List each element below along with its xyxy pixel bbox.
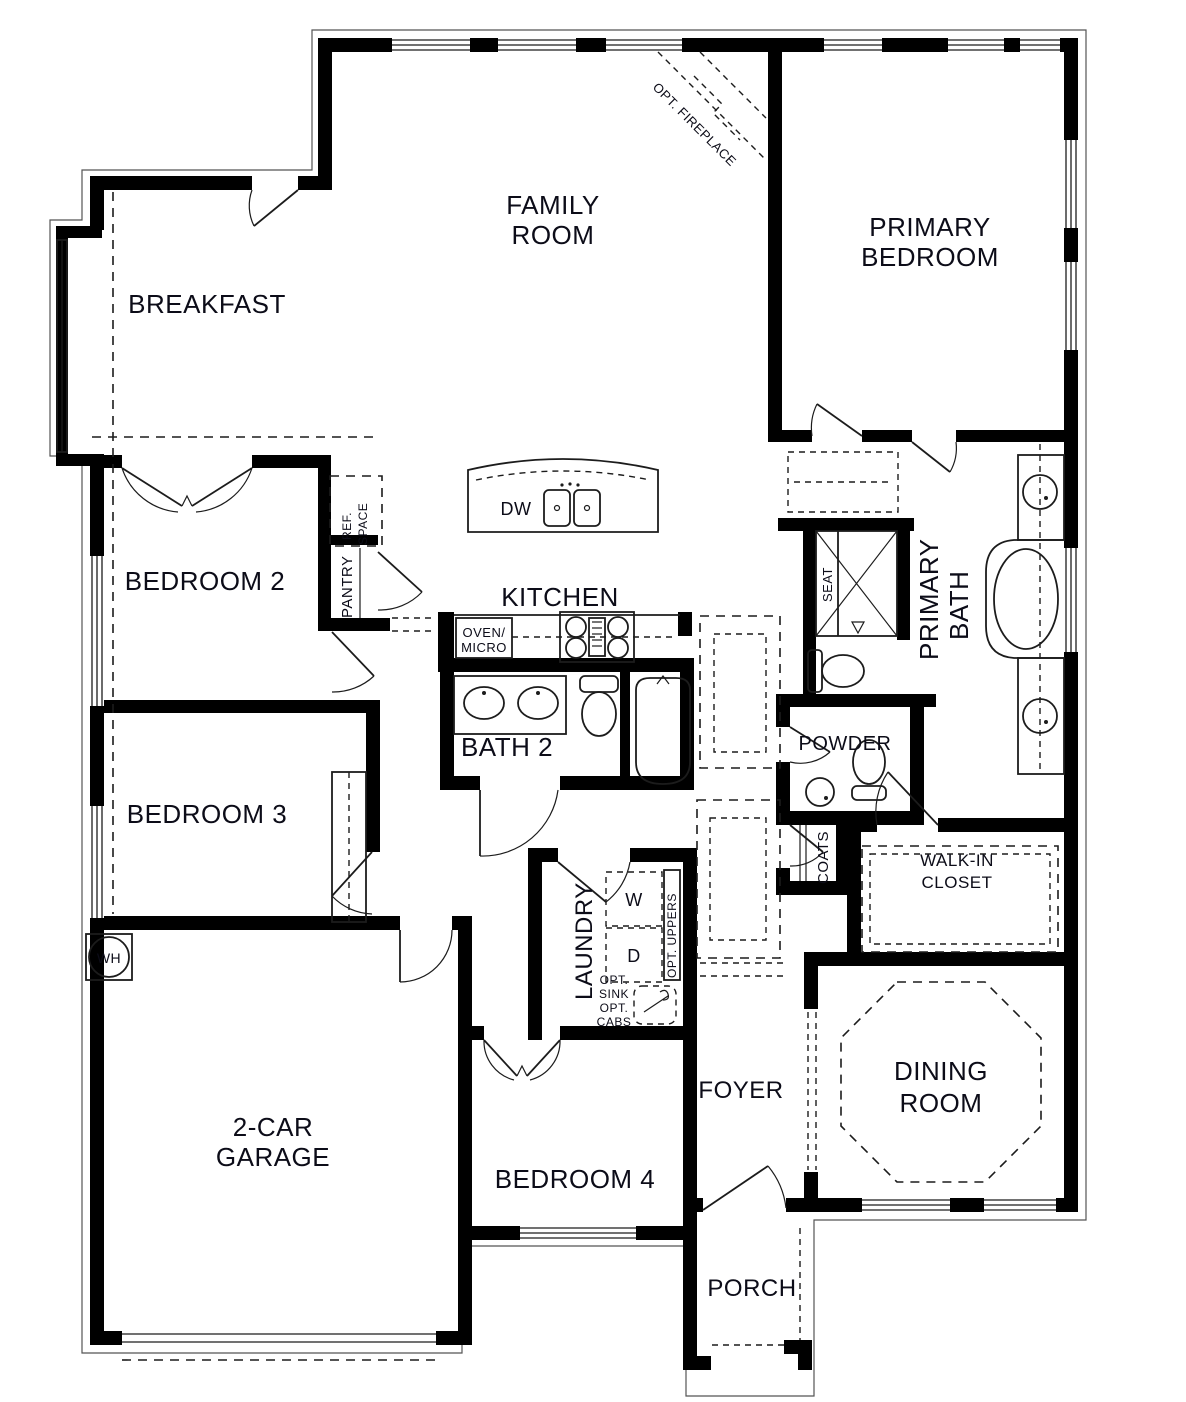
opt-cabinet-niche <box>700 616 780 768</box>
window <box>1064 548 1078 652</box>
family-room-label-1: FAMILY <box>506 190 600 220</box>
walk-in-closet-label-2: CLOSET <box>921 873 992 892</box>
foyer-label: FOYER <box>698 1077 783 1104</box>
porch-column-right <box>784 1340 812 1370</box>
window <box>862 1198 950 1212</box>
bedroom4-double-doors <box>484 1040 560 1080</box>
porch-column-left <box>683 1326 711 1370</box>
dryer-label: D <box>627 946 641 966</box>
floor-plan-canvas: OPT. FIREPLACE DW OVEN/ MICRO PANTRY REF… <box>0 0 1186 1402</box>
kitchen-counter: OVEN/ MICRO <box>454 612 680 662</box>
garage-entry-door <box>400 930 452 982</box>
bath2-door <box>480 790 558 856</box>
pantry: PANTRY <box>339 548 360 618</box>
walk-in-closet-label-1: WALK-IN <box>920 851 994 870</box>
garage-label-2: GARAGE <box>216 1142 330 1172</box>
primary-toilet <box>808 650 864 692</box>
front-door <box>703 1166 786 1210</box>
dishwasher-label: DW <box>501 499 532 519</box>
room-labels: FAMILY ROOM PRIMARY BEDROOM BREAKFAST BE… <box>125 190 999 1302</box>
kitchen-island: DW <box>468 459 658 532</box>
window <box>948 38 1004 52</box>
primary-bath-label-1: PRIMARY <box>914 539 944 661</box>
family-room-label-2: ROOM <box>512 220 595 250</box>
coats-label: COATS <box>815 831 832 884</box>
dining-room-label-2: ROOM <box>900 1088 983 1118</box>
pantry-door <box>378 552 422 610</box>
laundry-label: LAUNDRY <box>571 882 598 1000</box>
breakfast-exterior-door <box>249 190 298 226</box>
kitchen-label: KITCHEN <box>501 582 619 612</box>
vestibule-door-bedroom <box>912 442 956 472</box>
linen-closet <box>788 452 898 512</box>
window <box>1020 38 1060 52</box>
opt-fireplace-label: OPT. FIREPLACE <box>650 80 740 170</box>
window <box>520 1226 636 1240</box>
garage-door <box>122 1333 436 1360</box>
opt-fireplace: OPT. FIREPLACE <box>650 52 766 169</box>
window <box>90 556 104 706</box>
water-heater-label: WH <box>97 950 121 966</box>
opt-sink-label-2: SINK <box>599 987 629 1001</box>
bedroom4-label: BEDROOM 4 <box>495 1164 656 1194</box>
dining-room-label-1: DINING <box>894 1056 988 1086</box>
window <box>606 38 682 52</box>
primary-bath-label-2: BATH <box>944 571 974 640</box>
primary-tub <box>986 540 1064 658</box>
breakfast-label: BREAKFAST <box>128 289 286 319</box>
oven-micro-label-1: OVEN/ <box>463 625 506 640</box>
ref-space-label-1: REF. <box>340 512 354 540</box>
bedroom2-label: BEDROOM 2 <box>125 566 286 596</box>
window <box>498 38 576 52</box>
window <box>1064 140 1078 228</box>
shower-seat-label: SEAT <box>820 567 835 602</box>
kitchen-sink <box>544 482 600 526</box>
garage-label-1: 2-CAR <box>233 1112 314 1142</box>
primary-bedroom-label-2: BEDROOM <box>861 242 999 272</box>
bath2-label: BATH 2 <box>461 732 553 762</box>
bath2-fixtures <box>454 676 690 784</box>
opt-sink <box>634 986 676 1024</box>
primary-bedroom-label-1: PRIMARY <box>869 212 991 242</box>
bath2-vanity <box>454 676 566 734</box>
porch-details <box>683 1326 812 1370</box>
pantry-label: PANTRY <box>339 556 356 618</box>
window <box>90 806 104 918</box>
bedroom2-double-doors <box>122 468 252 512</box>
opt-uppers-label: OPT. UPPERS <box>665 893 679 978</box>
bath2-toilet <box>580 676 618 736</box>
ref-space-label-2: SPACE <box>356 503 370 545</box>
opt-sink-label-1: OPT. <box>600 973 629 987</box>
bedroom3-label: BEDROOM 3 <box>127 799 288 829</box>
powder-sink <box>806 778 834 806</box>
hall-door-kitchen <box>332 632 374 692</box>
window <box>1064 262 1078 350</box>
washer-label: W <box>625 890 643 910</box>
laundry-fixtures: W D OPT. UPPERS OPT. SINK OPT. CABS <box>597 870 680 1029</box>
opt-sink-label-4: CABS <box>597 1015 632 1029</box>
porch-label: PORCH <box>707 1275 796 1302</box>
powder-label: POWDER <box>799 733 892 755</box>
opt-cabinet-niche <box>697 800 780 958</box>
window <box>984 1198 1056 1212</box>
window <box>824 38 882 52</box>
oven-micro-label-2: MICRO <box>461 640 507 655</box>
bedroom3-closet <box>332 772 366 922</box>
floor-plan: OPT. FIREPLACE DW OVEN/ MICRO PANTRY REF… <box>0 0 1186 1402</box>
vestibule-door-family <box>811 404 862 436</box>
opt-sink-label-3: OPT. <box>600 1001 629 1015</box>
window <box>392 38 470 52</box>
